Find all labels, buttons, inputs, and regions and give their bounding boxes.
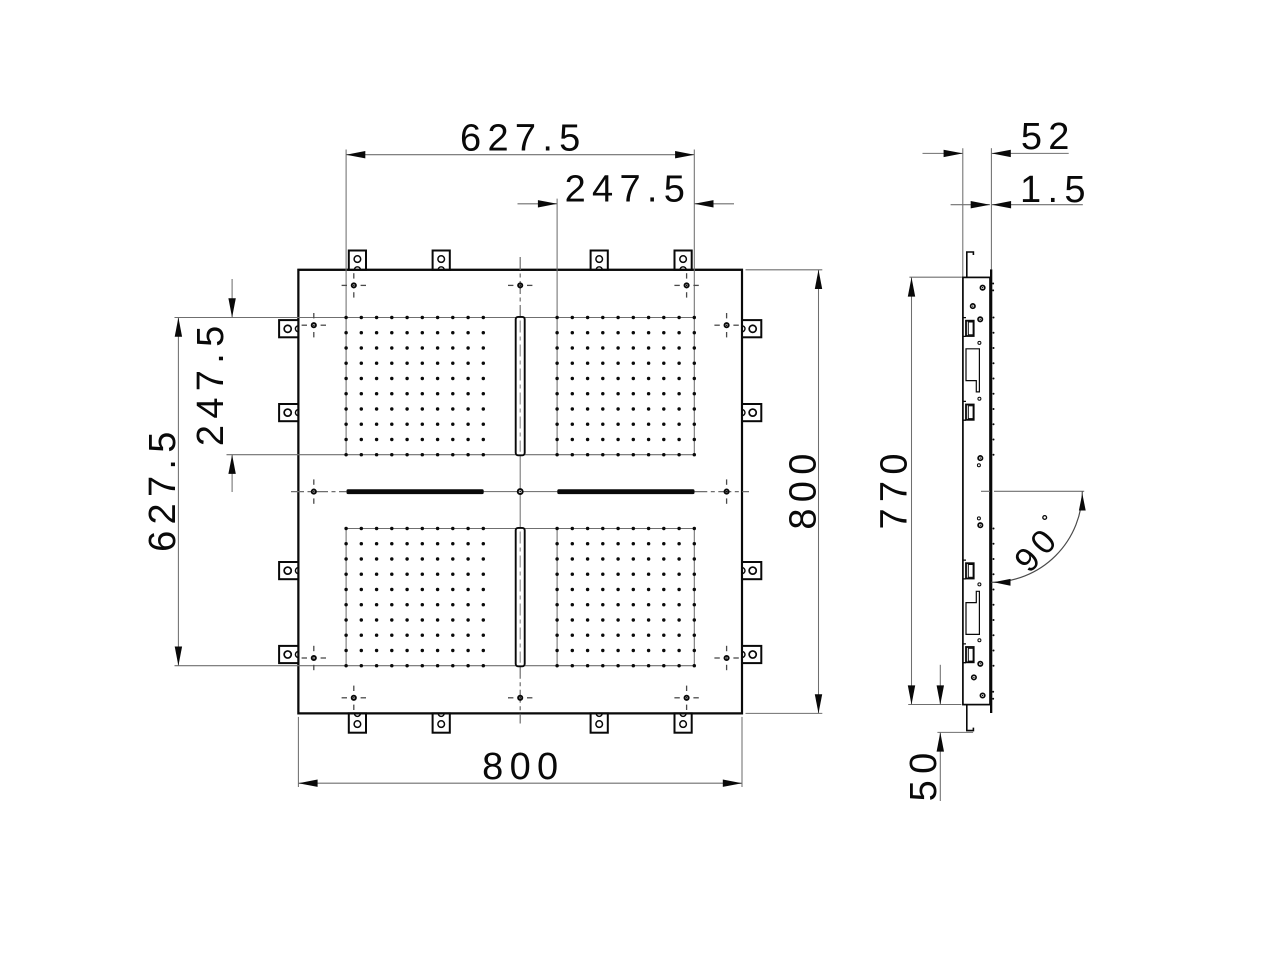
svg-text:627.5: 627.5: [142, 425, 184, 552]
svg-text:800: 800: [782, 447, 824, 529]
svg-text:247.5: 247.5: [190, 320, 232, 447]
svg-text:50: 50: [903, 746, 945, 801]
svg-text:627.5: 627.5: [460, 118, 587, 160]
svg-text:770: 770: [874, 447, 916, 529]
svg-text:800: 800: [482, 746, 564, 788]
svg-text:1.5: 1.5: [1020, 169, 1092, 211]
svg-text:247.5: 247.5: [565, 168, 692, 210]
svg-text:52: 52: [1021, 116, 1076, 158]
